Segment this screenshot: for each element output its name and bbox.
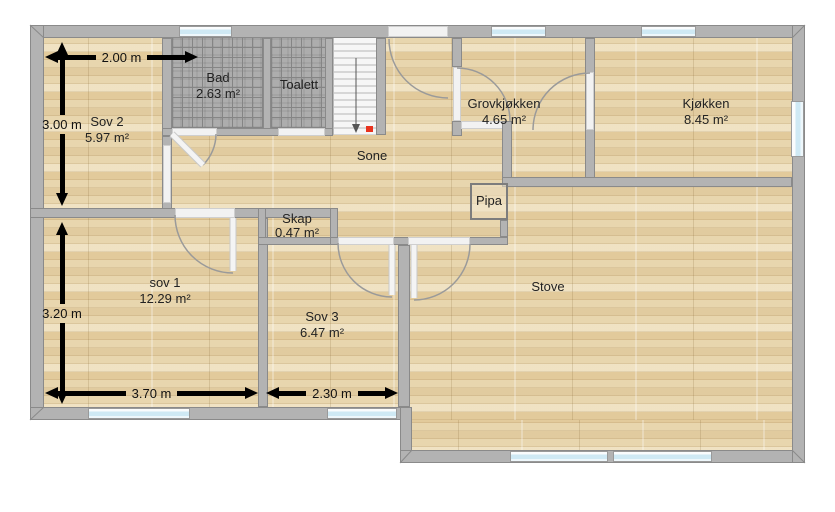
room-name: Stove [531, 279, 564, 295]
dimension-sov1-height: 3.20 m [34, 222, 90, 404]
room-label-kjokken: Kjøkken 8.45 m² [683, 96, 730, 128]
wall-sov1-sov3 [258, 218, 268, 407]
arrow-right-icon [185, 51, 198, 63]
dimension-sov1-width: 3.70 m [45, 386, 258, 400]
room-area: 5.97 m² [85, 130, 129, 146]
room-area: 2.63 m² [196, 86, 240, 102]
door-grovkjokken [453, 67, 461, 121]
dimension-label: 3.20 m [42, 304, 82, 323]
room-name: Skap [275, 212, 319, 226]
door-toalett [278, 128, 325, 136]
room-label-bad: Bad 2.63 m² [196, 70, 240, 102]
window-sov3 [327, 408, 397, 419]
room-label-stove: Stove [531, 279, 564, 295]
dimension-label: 3.00 m [42, 115, 82, 134]
room-label-grovkjokken: Grovkjøkken 4.65 m² [468, 96, 541, 128]
door-sov3 [338, 237, 394, 245]
staircase [333, 38, 378, 135]
door-stove [408, 237, 470, 245]
room-name: Sone [357, 148, 387, 164]
room-area: 0.47 m² [275, 226, 319, 240]
dimension-sov3-width: 2.30 m [266, 386, 398, 400]
room-name: sov 1 [139, 275, 190, 291]
floor-main-wood [30, 25, 805, 420]
arrow-right-icon [385, 387, 398, 399]
door-bad [172, 128, 217, 136]
room-label-toalett: Toalett [280, 77, 318, 93]
room-name: Sov 3 [300, 309, 344, 325]
dimension-label: 2.00 m [96, 50, 148, 65]
window-kjokken-top [641, 26, 696, 37]
arrow-left-icon [45, 387, 58, 399]
window-kjokken-right [791, 101, 804, 157]
window-stove-1 [510, 451, 608, 462]
room-area: 8.45 m² [683, 112, 730, 128]
door-sov1 [175, 208, 235, 218]
room-name: Pipa [476, 193, 502, 209]
wall-toalett-stairs [325, 38, 333, 136]
stair-marker [366, 126, 373, 132]
window-stove-2 [613, 451, 712, 462]
floor-plan: Sov 2 5.97 m² Bad 2.63 m² Toalett Sone G… [0, 0, 835, 512]
room-area: 4.65 m² [468, 112, 541, 128]
wall-sov3-stove [398, 245, 410, 407]
window-sov1 [88, 408, 190, 419]
wall-pipa-connector [500, 220, 508, 237]
dimension-label: 3.70 m [126, 386, 178, 401]
window-bad [179, 26, 232, 37]
room-label-sov2: Sov 2 5.97 m² [85, 114, 129, 146]
room-name: Kjøkken [683, 96, 730, 112]
room-label-skap: Skap 0.47 m² [275, 212, 319, 240]
arrow-up-icon [56, 222, 68, 235]
room-name: Sov 2 [85, 114, 129, 130]
room-name: Bad [196, 70, 240, 86]
wall-stairs-right [376, 38, 386, 135]
arrow-right-icon [245, 387, 258, 399]
window-grovkjokken [491, 26, 546, 37]
room-name: Grovkjøkken [468, 96, 541, 112]
wall-bad-toalett [263, 38, 271, 136]
room-label-pipa: Pipa [476, 193, 502, 209]
wall-outer-right [792, 25, 805, 463]
room-label-sone: Sone [357, 148, 387, 164]
room-label-sov1: sov 1 12.29 m² [139, 275, 190, 307]
room-label-sov3: Sov 3 6.47 m² [300, 309, 344, 341]
dimension-sov2-height: 3.00 m [34, 42, 90, 206]
entry-door [388, 26, 448, 37]
room-area: 12.29 m² [139, 291, 190, 307]
door-sov2 [163, 145, 171, 203]
wall-kjokken-stove [502, 177, 792, 187]
wall-sone-grovkjokken [452, 38, 462, 67]
room-name: Toalett [280, 77, 318, 93]
door-kjokken [586, 72, 594, 130]
arrow-left-icon [266, 387, 279, 399]
arrow-down-icon [56, 193, 68, 206]
room-area: 6.47 m² [300, 325, 344, 341]
dimension-label: 2.30 m [306, 386, 358, 401]
arrow-up-icon [56, 42, 68, 55]
